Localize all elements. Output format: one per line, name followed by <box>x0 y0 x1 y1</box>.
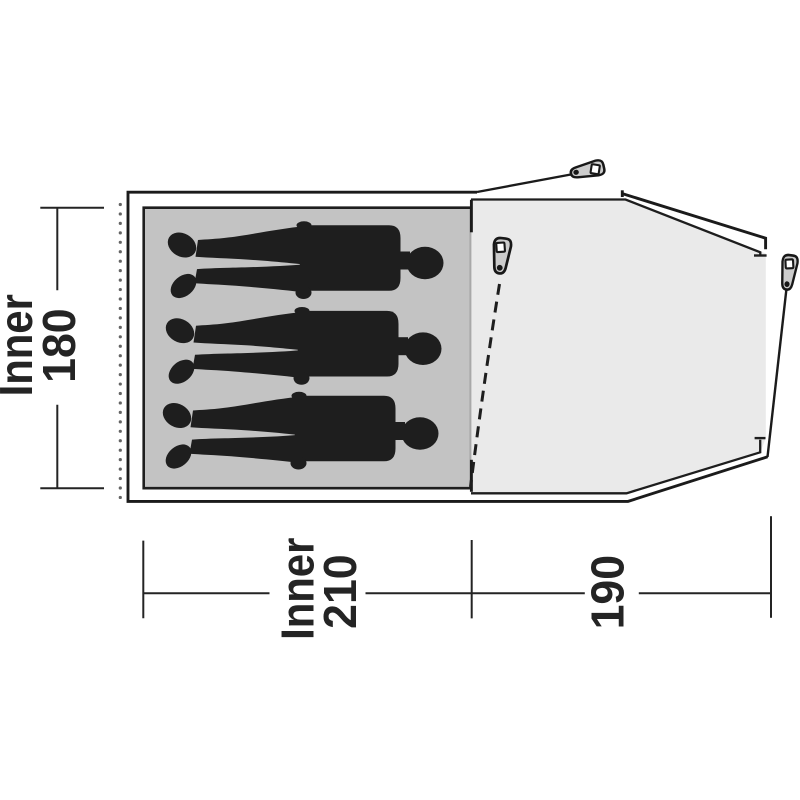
svg-text:190: 190 <box>582 555 634 629</box>
svg-text:180: 180 <box>33 308 85 382</box>
svg-text:210: 210 <box>314 554 366 628</box>
